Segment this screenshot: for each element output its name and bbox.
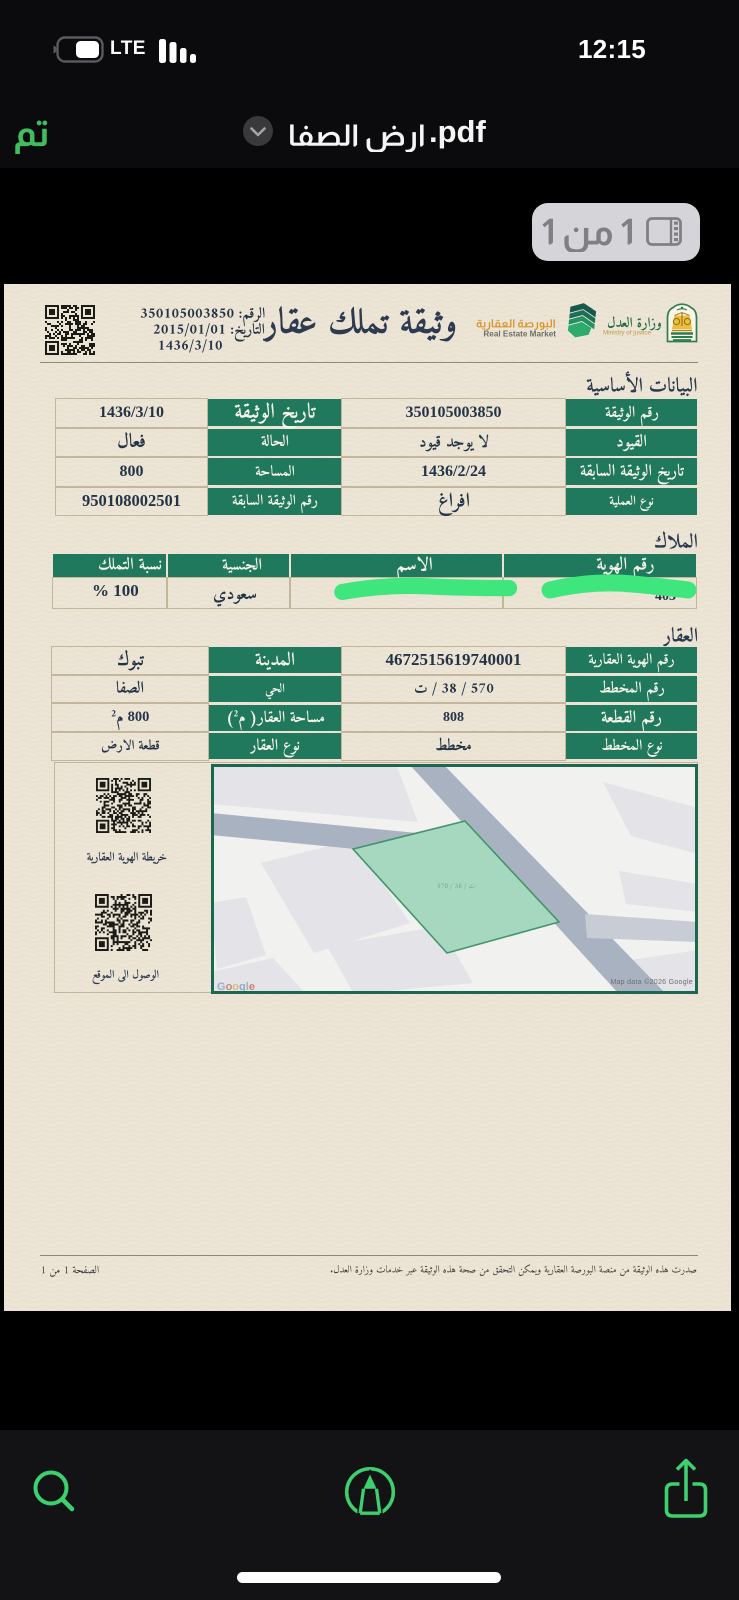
svg-text:Map data ©2026 Google: Map data ©2026 Google bbox=[610, 978, 693, 986]
